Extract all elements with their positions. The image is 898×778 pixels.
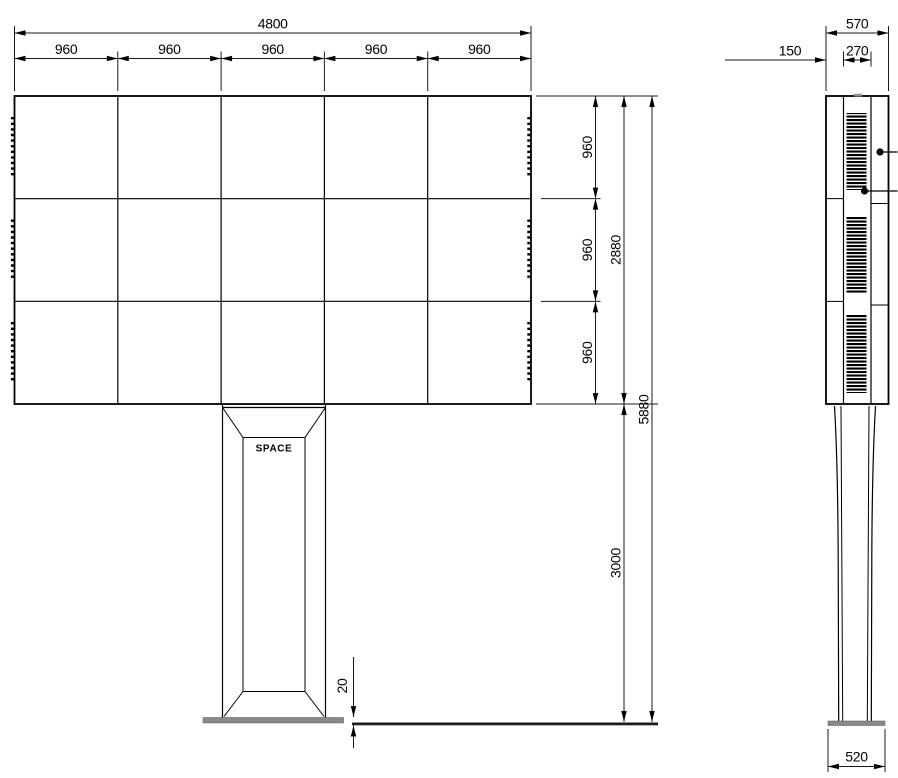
dim-module-width-1: 960 bbox=[55, 41, 78, 57]
dim-vent-section-depth: 270 bbox=[846, 43, 869, 59]
cabinet-top-notch bbox=[854, 94, 862, 97]
side-base-dimension: 520 bbox=[828, 729, 885, 772]
screen-grid bbox=[12, 96, 531, 404]
dim-column-height: 3000 bbox=[608, 548, 624, 578]
front-view: SPACE 4800 960 960 960 960 960 bbox=[12, 16, 658, 749]
dim-base-width: 520 bbox=[845, 749, 868, 765]
pedestal: SPACE bbox=[223, 404, 326, 718]
side-view: 570 150 270 520 bbox=[725, 16, 898, 773]
side-base-plate bbox=[828, 721, 885, 726]
dim-screen-height: 2880 bbox=[608, 235, 624, 265]
dim-module-height-2: 960 bbox=[579, 238, 595, 261]
dim-front-section-depth: 150 bbox=[779, 43, 802, 59]
dim-overall-height: 5880 bbox=[636, 394, 652, 424]
dim-module-height-3: 960 bbox=[579, 341, 595, 364]
screen-outline bbox=[15, 96, 532, 404]
pedestal-taper-line bbox=[224, 692, 243, 717]
pedestal-taper-line bbox=[305, 408, 326, 438]
leader-dot-icon bbox=[876, 148, 883, 155]
front-top-dimensions: 4800 960 960 960 960 960 bbox=[15, 16, 532, 92]
technical-drawing-sheet: SPACE 4800 960 960 960 960 960 bbox=[0, 0, 898, 778]
dim-module-width-4: 960 bbox=[365, 41, 388, 57]
pedestal-taper-line bbox=[223, 408, 244, 438]
dim-module-width-2: 960 bbox=[158, 41, 181, 57]
side-pole bbox=[835, 406, 876, 721]
pole-outer-edge bbox=[835, 406, 839, 721]
pedestal-taper-line bbox=[305, 692, 324, 717]
side-top-dimensions: 570 150 270 bbox=[725, 16, 889, 92]
dim-total-depth: 570 bbox=[846, 16, 869, 32]
ground-line bbox=[352, 723, 658, 726]
pole-facet-edge bbox=[867, 406, 869, 721]
leader-dot-icon bbox=[861, 187, 868, 194]
dim-module-width-3: 960 bbox=[261, 41, 284, 57]
led-billboard-drawing: SPACE 4800 960 960 960 960 960 bbox=[0, 0, 898, 778]
dim-total-width: 4800 bbox=[258, 16, 288, 32]
pole-facet-edge bbox=[841, 406, 843, 721]
plate-thickness-dimension: 20 bbox=[334, 657, 354, 748]
pedestal-brand-label: SPACE bbox=[256, 444, 293, 455]
dim-module-width-5: 960 bbox=[468, 41, 491, 57]
louver-bands bbox=[847, 113, 867, 393]
edge-louver-ticks bbox=[12, 117, 528, 384]
dim-plate-thickness: 20 bbox=[334, 678, 350, 693]
pole-outer-edge bbox=[871, 406, 875, 721]
louver-band bbox=[847, 113, 867, 190]
pedestal-door-panel bbox=[243, 438, 305, 692]
front-right-dimensions: 960 960 960 2880 3000 5880 bbox=[536, 96, 658, 722]
dim-module-height-1: 960 bbox=[579, 136, 595, 159]
louver-band bbox=[847, 217, 867, 294]
louver-band bbox=[847, 315, 867, 393]
pedestal-base-plate bbox=[203, 718, 344, 724]
